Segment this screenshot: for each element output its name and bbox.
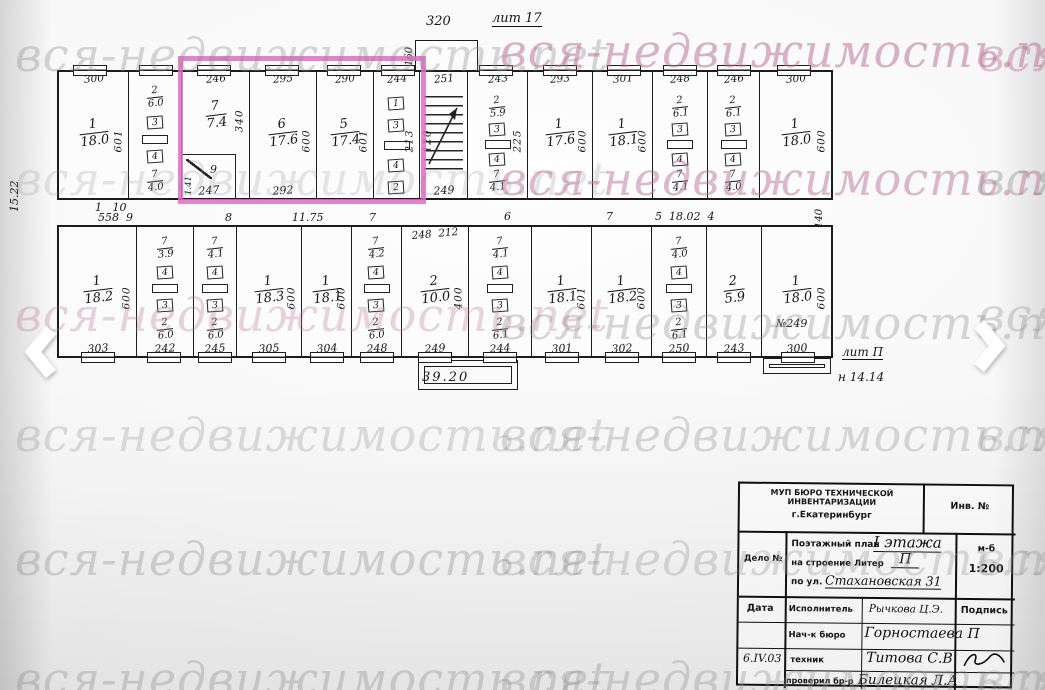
- signature-icon: [960, 648, 1008, 673]
- window: [545, 352, 579, 363]
- date-label: Дата: [747, 603, 774, 614]
- liter-annotation-right: лит П: [842, 345, 883, 360]
- wc-label: 3: [489, 123, 506, 137]
- bath-label: 4: [492, 265, 509, 279]
- dim-vertical: 601: [112, 129, 124, 152]
- room-label: 1: [388, 96, 405, 110]
- room-label: 118.1: [545, 273, 578, 308]
- bath-fixture: [364, 284, 390, 293]
- room-label: 118.1: [606, 116, 639, 151]
- service-cluster: 243 25.9 3 4 74.1 225: [468, 72, 528, 198]
- scale-label: м-б: [961, 544, 1011, 555]
- liter-annotation-top: лит 17: [492, 11, 542, 27]
- service-cluster: 74.1 4 3 26.0 245: [194, 227, 237, 356]
- service-cluster: 246 26.1 3 4 74.0: [708, 72, 760, 198]
- bath-label: 4: [207, 265, 224, 279]
- dim-vertical: 600: [576, 129, 588, 152]
- org-city: г.Екатеринбург: [744, 510, 920, 522]
- room-cell-highlighted: 246 77.4 340 9 247 1.41: [182, 72, 250, 198]
- plan-label: Поэтажный план: [791, 539, 879, 550]
- wc-label: 3: [147, 115, 164, 129]
- room-cell: 301 118.1 600: [593, 72, 653, 198]
- stair-arrow-icon: [423, 100, 463, 170]
- bath-fixture: [721, 140, 747, 149]
- room-label: 118.0: [780, 273, 813, 308]
- chevron-left-icon: [20, 322, 64, 382]
- photo-viewer: 320 лит 17 160 15.22 140 300 118.0 601 2…: [0, 0, 1045, 690]
- entry-projection: [415, 40, 478, 71]
- room-label: 118.2: [81, 273, 114, 308]
- street-label: по ул.: [791, 577, 823, 587]
- flat-number-note: №249: [776, 317, 807, 330]
- corridor-dim: 7: [606, 210, 613, 223]
- liter-value: П: [891, 551, 919, 568]
- hall-label: 74.2: [367, 235, 386, 261]
- room-cell: 118.0 600 №249 300: [762, 227, 831, 356]
- technician-value: Титова С.В: [866, 650, 953, 667]
- bath-fixture: [666, 284, 692, 293]
- corridor-dim: 8: [225, 211, 232, 224]
- room-cell: 118.2 600 302: [592, 227, 652, 356]
- window: [252, 352, 286, 363]
- checker-value: Билецкая Л.А: [858, 672, 958, 689]
- room-number: 9: [210, 163, 217, 176]
- service-cluster: 26.0 3 4 74.0: [129, 72, 182, 198]
- service-cluster: 74.0 4 3 26.1 250: [652, 227, 707, 356]
- hall-label: 74.0: [670, 235, 689, 261]
- stamp-line: [739, 596, 1015, 600]
- dim-left-height: 15.22: [8, 181, 21, 213]
- window: [360, 352, 394, 363]
- wc-label: 3: [207, 298, 224, 312]
- window: [717, 65, 751, 76]
- dim-label: 292: [272, 183, 294, 197]
- room-label: 77.4: [203, 99, 227, 133]
- chevron-right-icon: [966, 316, 1010, 376]
- kitchen-label: 26.0: [367, 317, 386, 343]
- floor-value: I этажа: [873, 533, 941, 553]
- bath-label: 4: [672, 152, 689, 166]
- bath-label: 4: [388, 158, 405, 172]
- corridor-dim: 11.75: [292, 211, 324, 224]
- hall-label: 74.0: [146, 169, 165, 195]
- dim-vertical: 213: [403, 129, 415, 152]
- room-label: 517.4: [329, 116, 362, 151]
- dim-vertical: 600: [815, 286, 827, 309]
- wc-label: 3: [725, 123, 742, 137]
- room-cell: 25.9 243: [707, 227, 762, 356]
- watermark-text: вся-недвижимость.net: [978, 152, 1045, 206]
- watermark-text: вся-недвижимость.net: [15, 652, 609, 690]
- dim-vertical: 600: [120, 286, 132, 309]
- room-cell: 293 117.6 600: [528, 72, 593, 198]
- checker-label: проверил бр-р: [786, 676, 854, 686]
- room-area: 18.0: [79, 132, 110, 151]
- window: [483, 352, 517, 363]
- dim-label: 247: [198, 183, 220, 197]
- room-cell: 118.1 601 301: [532, 227, 592, 356]
- bath-fixture: [485, 140, 511, 149]
- wc-label: 3: [492, 298, 509, 312]
- watermark-text: вся-недвижимость.net: [978, 408, 1045, 462]
- dim-label: 251: [433, 72, 454, 86]
- window: [310, 352, 344, 363]
- hall-label: 74.1: [671, 169, 690, 195]
- room-cell: 300 118.0 600: [760, 72, 831, 198]
- chief-label: Нач-к бюро: [788, 630, 845, 641]
- dim-label: 1.41: [184, 176, 194, 195]
- kitchen-label: 26.1: [724, 94, 743, 120]
- prev-image-button[interactable]: [20, 322, 64, 385]
- window: [607, 65, 641, 76]
- bath-label: 4: [368, 265, 385, 279]
- bath-fixture: [142, 135, 168, 144]
- dim-vertical: 225: [511, 129, 523, 152]
- service-cluster: 74.1 4 3 26.1 244: [469, 227, 532, 356]
- scale-value: 1:200: [961, 562, 1011, 576]
- window: [418, 352, 452, 363]
- hall-label: 74.0: [724, 169, 743, 195]
- window: [381, 65, 415, 76]
- chief-value: Горностаева П: [864, 625, 979, 642]
- wc-label: 3: [368, 298, 385, 312]
- wc-label: 3: [157, 298, 174, 312]
- liter-label: на строение Литер: [791, 558, 884, 569]
- window: [777, 65, 811, 76]
- service-cluster: 73.9 4 3 26.0 242: [137, 227, 194, 356]
- height-annotation: н 14.14: [838, 370, 884, 384]
- corridor-dim: 7: [369, 211, 376, 224]
- kitchen-label: 25.9: [488, 94, 507, 120]
- window: [663, 65, 697, 76]
- corridor-dim: 6: [504, 210, 511, 223]
- room-label: 118.2: [605, 273, 638, 308]
- case-number-label: Дело №: [741, 554, 785, 564]
- service-cluster: 74.2 4 3 26.0 248: [352, 227, 402, 356]
- dim-vertical: 400: [452, 286, 464, 309]
- stamp-line: [954, 533, 957, 690]
- kitchen-label: 2: [388, 180, 405, 194]
- room-cell-highlighted: 295 617.6 600 292: [250, 72, 317, 198]
- room-label: 118.0: [779, 116, 812, 151]
- bath-label: 4: [489, 152, 506, 166]
- stamp-line: [923, 485, 925, 532]
- stairwell: 251 249 120: [420, 72, 468, 198]
- window: [265, 65, 299, 76]
- kitchen-label: 26.1: [491, 317, 510, 343]
- bath-label: 4: [157, 265, 174, 279]
- window: [543, 65, 577, 76]
- bath-label: 4: [725, 152, 742, 166]
- corridor-dim: 5 18.02 4: [655, 210, 714, 223]
- title-block: МУП БЮРО ТЕХНИЧЕСКОЙ ИНВЕНТАРИЗАЦИИ г.Ек…: [736, 482, 1014, 689]
- kitchen-label: 26.0: [156, 317, 175, 343]
- technician-label: техник: [790, 655, 824, 665]
- dim-label: 249: [433, 183, 455, 197]
- dim-140: 140: [814, 209, 825, 228]
- room-cell: 118.3 600 305: [237, 227, 302, 356]
- window: [327, 65, 361, 76]
- dim-320: 320: [426, 14, 451, 29]
- executor-label: Исполнитель: [789, 604, 853, 615]
- executor-value: Рычкова Ц.Э.: [869, 603, 943, 616]
- hall-label: 74.1: [491, 235, 510, 261]
- hall-label: 73.9: [156, 235, 175, 261]
- next-image-button[interactable]: [966, 316, 1010, 379]
- window: [81, 352, 115, 363]
- window: [781, 352, 815, 363]
- service-cluster: 244 1 3 4 2 213: [374, 72, 420, 198]
- hall-label: 74.1: [488, 169, 507, 195]
- bath-label: 4: [671, 265, 688, 279]
- dim-total-length: 39.20: [422, 370, 469, 385]
- bath-fixture: [202, 284, 228, 293]
- room-label: 118.1: [310, 273, 343, 308]
- bath-fixture: [667, 140, 693, 149]
- watermark-text: вся-недвижимость.net: [978, 28, 1045, 82]
- signature-label: Подпись: [961, 605, 1008, 616]
- dim-label: 248 212: [411, 226, 459, 242]
- watermark-text: вся-недвижимость.net: [500, 408, 1045, 462]
- corridor-dim: 558 9: [98, 211, 133, 224]
- wc-label: 3: [388, 118, 405, 132]
- bath-fixture: [487, 284, 513, 293]
- window: [198, 352, 232, 363]
- wc-label: 3: [671, 298, 688, 312]
- window: [717, 352, 751, 363]
- dim-vertical: 600: [285, 286, 297, 309]
- window: [479, 65, 513, 76]
- bottom-wing: 118.2 600 303 73.9 4 3 26.0 242 74.1 4 3…: [57, 225, 833, 358]
- date-value: 6.IV.03: [742, 652, 782, 665]
- room-label: 25.9: [722, 273, 746, 307]
- wc-label: 3: [672, 123, 689, 137]
- service-cluster: 248 26.1 3 4 74.1: [653, 72, 708, 198]
- room-label: 118.3: [253, 273, 286, 308]
- room-label: 118.0: [77, 116, 110, 151]
- org-name: МУП БЮРО ТЕХНИЧЕСКОЙ ИНВЕНТАРИЗАЦИИ: [744, 488, 920, 508]
- hall-label: 74.1: [206, 235, 225, 261]
- window: [139, 65, 173, 76]
- bath-fixture: [152, 284, 178, 293]
- window: [197, 65, 231, 76]
- inventory-number-label: Инв. №: [926, 501, 1014, 513]
- room-label: 210.0: [419, 273, 452, 308]
- room-cell: 248 212 210.0 400 249: [402, 227, 469, 356]
- kitchen-label: 26.0: [146, 84, 165, 110]
- room-cell: 118.1 600 304: [302, 227, 352, 356]
- room-label: 117.6: [544, 116, 577, 151]
- window: [147, 352, 181, 363]
- window: [662, 352, 696, 363]
- watermark-text: вся-недвижимость.net: [15, 532, 609, 586]
- top-wing: 300 118.0 601 26.0 3 4 74.0 246 77.4 340…: [57, 70, 833, 200]
- watermark-text: вся-недвижимость.net: [15, 408, 609, 462]
- room-label: 617.6: [267, 116, 300, 151]
- room-cell: 300 118.0 601: [59, 72, 129, 198]
- dim-vertical: 340: [233, 109, 245, 132]
- bath-label: 4: [147, 149, 164, 163]
- dim-160: 160: [404, 47, 415, 66]
- street-value: Стахановская 31: [825, 572, 942, 589]
- kitchen-label: 26.0: [206, 317, 225, 343]
- room-cell-highlighted: 290 517.4 601: [317, 72, 374, 198]
- kitchen-label: 26.1: [670, 317, 689, 343]
- window: [605, 352, 639, 363]
- dim-vertical: 600: [815, 129, 827, 152]
- room-cell: 118.2 600 303: [59, 227, 137, 356]
- dim-vertical: 600: [300, 129, 312, 152]
- window: [73, 65, 107, 76]
- inner-hall: 9 247 1.41: [182, 154, 236, 198]
- kitchen-label: 26.1: [671, 94, 690, 120]
